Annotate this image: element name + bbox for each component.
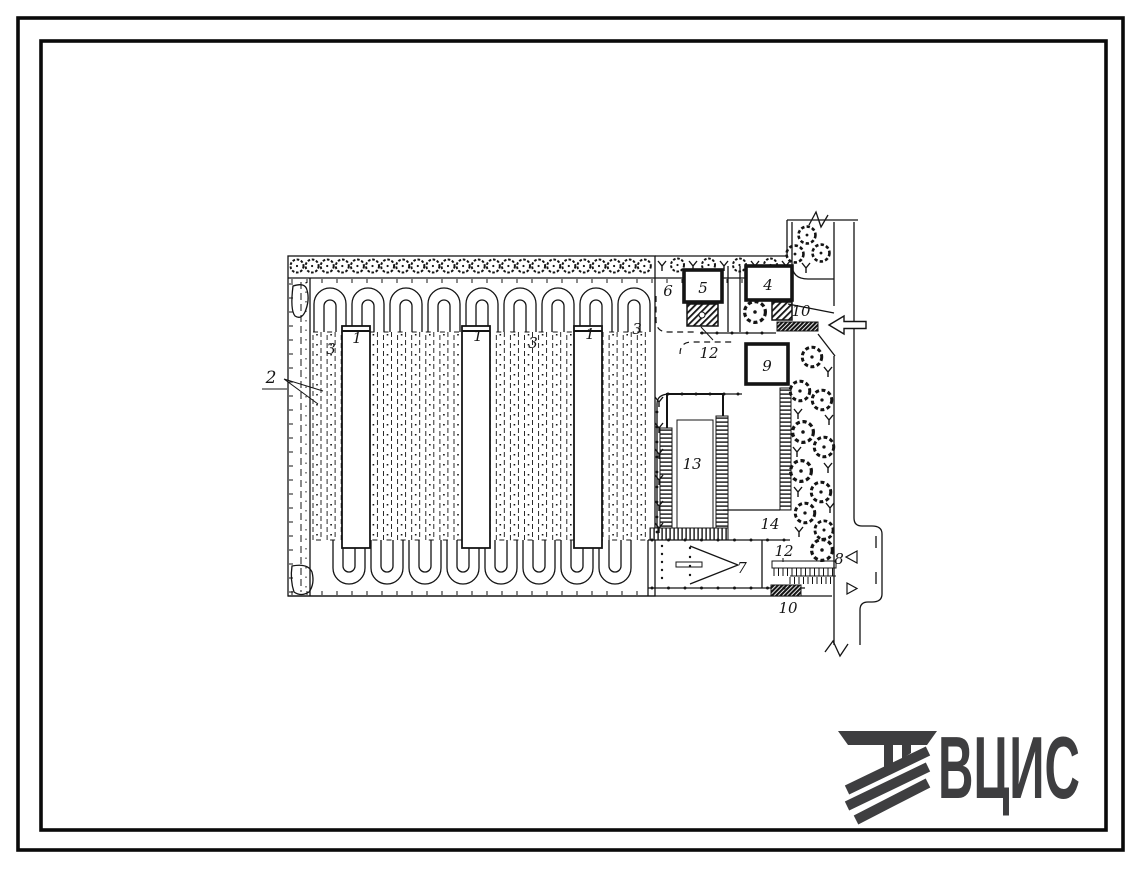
fence-dot	[750, 539, 753, 542]
fence-dot	[656, 441, 659, 444]
vcis-logo: ВЦИС	[838, 718, 1080, 820]
bush-icon	[577, 260, 590, 273]
fence-dot	[717, 539, 720, 542]
tree-icon	[795, 503, 815, 523]
label-1c: 1	[585, 325, 595, 343]
greenhouse-buildings	[342, 326, 602, 548]
chevron-gate	[690, 546, 738, 584]
bush-icon	[562, 260, 575, 273]
fence-dot	[716, 332, 719, 335]
retaining-wall	[780, 388, 791, 510]
bush-icon	[638, 260, 651, 273]
tree-icon	[802, 347, 822, 367]
fence-dot	[661, 577, 663, 579]
label-12a: 12	[699, 344, 718, 362]
drawing-sheet: 2 3 1 1 3 1 3 6 5 4 10 12 9 13 14 7 12 8…	[0, 0, 1139, 869]
bush-icon	[396, 260, 409, 273]
substation-dot	[699, 312, 705, 318]
fence-dot	[656, 411, 659, 414]
triangle-right-icon	[847, 583, 857, 594]
fence-dot	[661, 545, 663, 547]
greenhouse-1b	[462, 326, 490, 548]
fence-dot	[731, 332, 734, 335]
label-5: 5	[698, 279, 708, 297]
entrance-arrow-icon	[829, 316, 866, 334]
shrub-icon	[824, 463, 832, 473]
fence-dot	[783, 587, 786, 590]
hotbed-strip	[525, 332, 533, 540]
shrub-icon	[793, 447, 801, 457]
tree-icon	[787, 246, 804, 263]
tree-icon	[812, 390, 832, 410]
bush-icon	[623, 260, 636, 273]
fence-dot	[689, 547, 691, 549]
fence-dot	[667, 393, 670, 396]
fence-dot	[656, 486, 659, 489]
greenhouse-1a	[342, 326, 370, 548]
tree-icon	[815, 521, 833, 539]
hotbed-strip	[553, 332, 561, 540]
fence-dot	[661, 553, 663, 555]
label-1a: 1	[352, 329, 362, 347]
fence-dot	[689, 565, 691, 567]
platform-bottom	[650, 528, 728, 540]
shrub-icon	[826, 503, 834, 513]
fence-dot	[750, 587, 753, 590]
bush-icon	[502, 260, 515, 273]
fence-dot	[667, 587, 670, 590]
fence-dot	[709, 393, 712, 396]
label-13: 13	[682, 455, 701, 473]
bush-icon	[487, 260, 500, 273]
triangle-left-icon	[846, 551, 857, 563]
tree-icon	[745, 302, 766, 323]
fence-dot	[700, 587, 703, 590]
bush-icon	[593, 260, 606, 273]
fence-dot	[651, 539, 654, 542]
shrub-icon	[824, 367, 832, 377]
tree-icon	[790, 381, 810, 401]
fence-dot	[656, 516, 659, 519]
tree-icon	[814, 437, 834, 457]
bush-icon	[426, 260, 439, 273]
fence-dot	[733, 539, 736, 542]
hotbed-strip	[609, 332, 617, 540]
hotbed-strip	[426, 332, 434, 540]
logo-emblem-icon	[838, 731, 937, 820]
bush-icon	[532, 260, 545, 273]
bush-icon	[366, 260, 379, 273]
fence-dot	[661, 561, 663, 563]
bush-icon	[457, 260, 470, 273]
label-9: 9	[762, 357, 772, 375]
left-ticks	[289, 284, 293, 592]
hotbed-strip	[496, 332, 504, 540]
fence-dot	[684, 539, 687, 542]
tree-icon	[791, 461, 812, 482]
label-3a: 3	[326, 340, 336, 358]
tree-icon	[799, 227, 816, 244]
fence-dot	[681, 393, 684, 396]
shrub-icon	[825, 415, 833, 425]
entrance-gate-bottom	[771, 585, 801, 596]
label-12b: 12	[774, 542, 793, 560]
label-6: 6	[663, 282, 673, 300]
label-10b: 10	[778, 599, 798, 617]
fence-dot	[717, 587, 720, 590]
hotbed-strip	[327, 332, 335, 540]
shrub-icon	[795, 527, 803, 537]
fence-dot	[651, 587, 654, 590]
fence-dot	[667, 539, 670, 542]
fence-dot	[684, 587, 687, 590]
bush-icon	[411, 260, 424, 273]
bush-icon	[321, 260, 334, 273]
ramp-left	[660, 428, 672, 534]
street-right-edge	[854, 222, 882, 645]
ramp-12	[772, 561, 836, 568]
bush-icon	[381, 260, 394, 273]
bush-icon	[336, 260, 349, 273]
tree-icon	[812, 540, 833, 561]
fence-dot	[700, 539, 703, 542]
break-symbol-bottom	[825, 641, 848, 656]
label-14: 14	[760, 515, 779, 533]
fence-dot	[761, 332, 764, 335]
bush-icon	[351, 260, 364, 273]
fence-dot	[689, 574, 691, 576]
label-10a: 10	[791, 302, 811, 320]
fence-dot	[746, 332, 749, 335]
fence-dot	[766, 587, 769, 590]
hotbed-strip	[539, 332, 547, 540]
hotbed-strip	[454, 332, 462, 540]
leader-lines	[284, 379, 323, 404]
label-8: 8	[834, 550, 844, 568]
label-4: 4	[762, 276, 773, 294]
label-3b: 3	[528, 334, 538, 352]
hotbed-strip	[313, 332, 321, 540]
shrub-icon	[802, 263, 810, 273]
service-yard	[648, 227, 857, 596]
bottom-ticks	[292, 591, 637, 595]
hotbed-strip	[412, 332, 420, 540]
fence-dot	[737, 393, 740, 396]
hotbed-strip	[440, 332, 448, 540]
hotbed-strip	[510, 332, 518, 540]
bush-icon	[517, 260, 530, 273]
entrance-bottom-edge	[818, 334, 835, 356]
bush-icon	[547, 260, 560, 273]
bush-icon	[291, 260, 304, 273]
fence-dot	[733, 587, 736, 590]
shrub-icon	[794, 487, 802, 497]
bush-icon	[306, 260, 319, 273]
fence-dot	[689, 556, 691, 558]
fence-dot	[723, 393, 726, 396]
label-3c: 3	[632, 320, 642, 338]
hotbed-strip	[623, 332, 631, 540]
path-between-4-5	[728, 266, 740, 332]
bush-icon	[671, 259, 684, 272]
fence-dot	[766, 539, 769, 542]
fence-dot	[656, 456, 659, 459]
bush-icon	[608, 260, 621, 273]
tree-icon	[811, 482, 831, 502]
shrub-icon	[794, 409, 802, 419]
ramp-right	[716, 416, 728, 528]
break-symbol-top	[809, 212, 828, 227]
emblem-top-bar	[838, 731, 937, 745]
building-13-core	[677, 420, 713, 532]
fence-dot	[656, 531, 659, 534]
logo-text: ВЦИС	[938, 718, 1080, 817]
fence-dot	[661, 569, 663, 571]
hotbed-strip	[384, 332, 392, 540]
fence-dot	[695, 393, 698, 396]
hotbed-strip	[398, 332, 406, 540]
entrance-gate-top	[777, 322, 818, 331]
label-1b: 1	[473, 327, 483, 345]
fence-dot	[701, 332, 704, 335]
tree-icon	[793, 422, 814, 443]
shrub-icon	[658, 261, 666, 271]
label-2: 2	[265, 368, 277, 388]
greenhouse-1c	[574, 326, 602, 548]
hotbed-strip	[637, 332, 645, 540]
bush-icon	[472, 260, 485, 273]
site-plan-drawing: 2 3 1 1 3 1 3 6 5 4 10 12 9 13 14 7 12 8…	[0, 0, 1139, 869]
bush-icon	[442, 260, 455, 273]
label-7: 7	[737, 559, 747, 577]
tree-icon	[813, 245, 830, 262]
yard-strip-7	[648, 540, 857, 596]
fence-dot	[656, 471, 659, 474]
